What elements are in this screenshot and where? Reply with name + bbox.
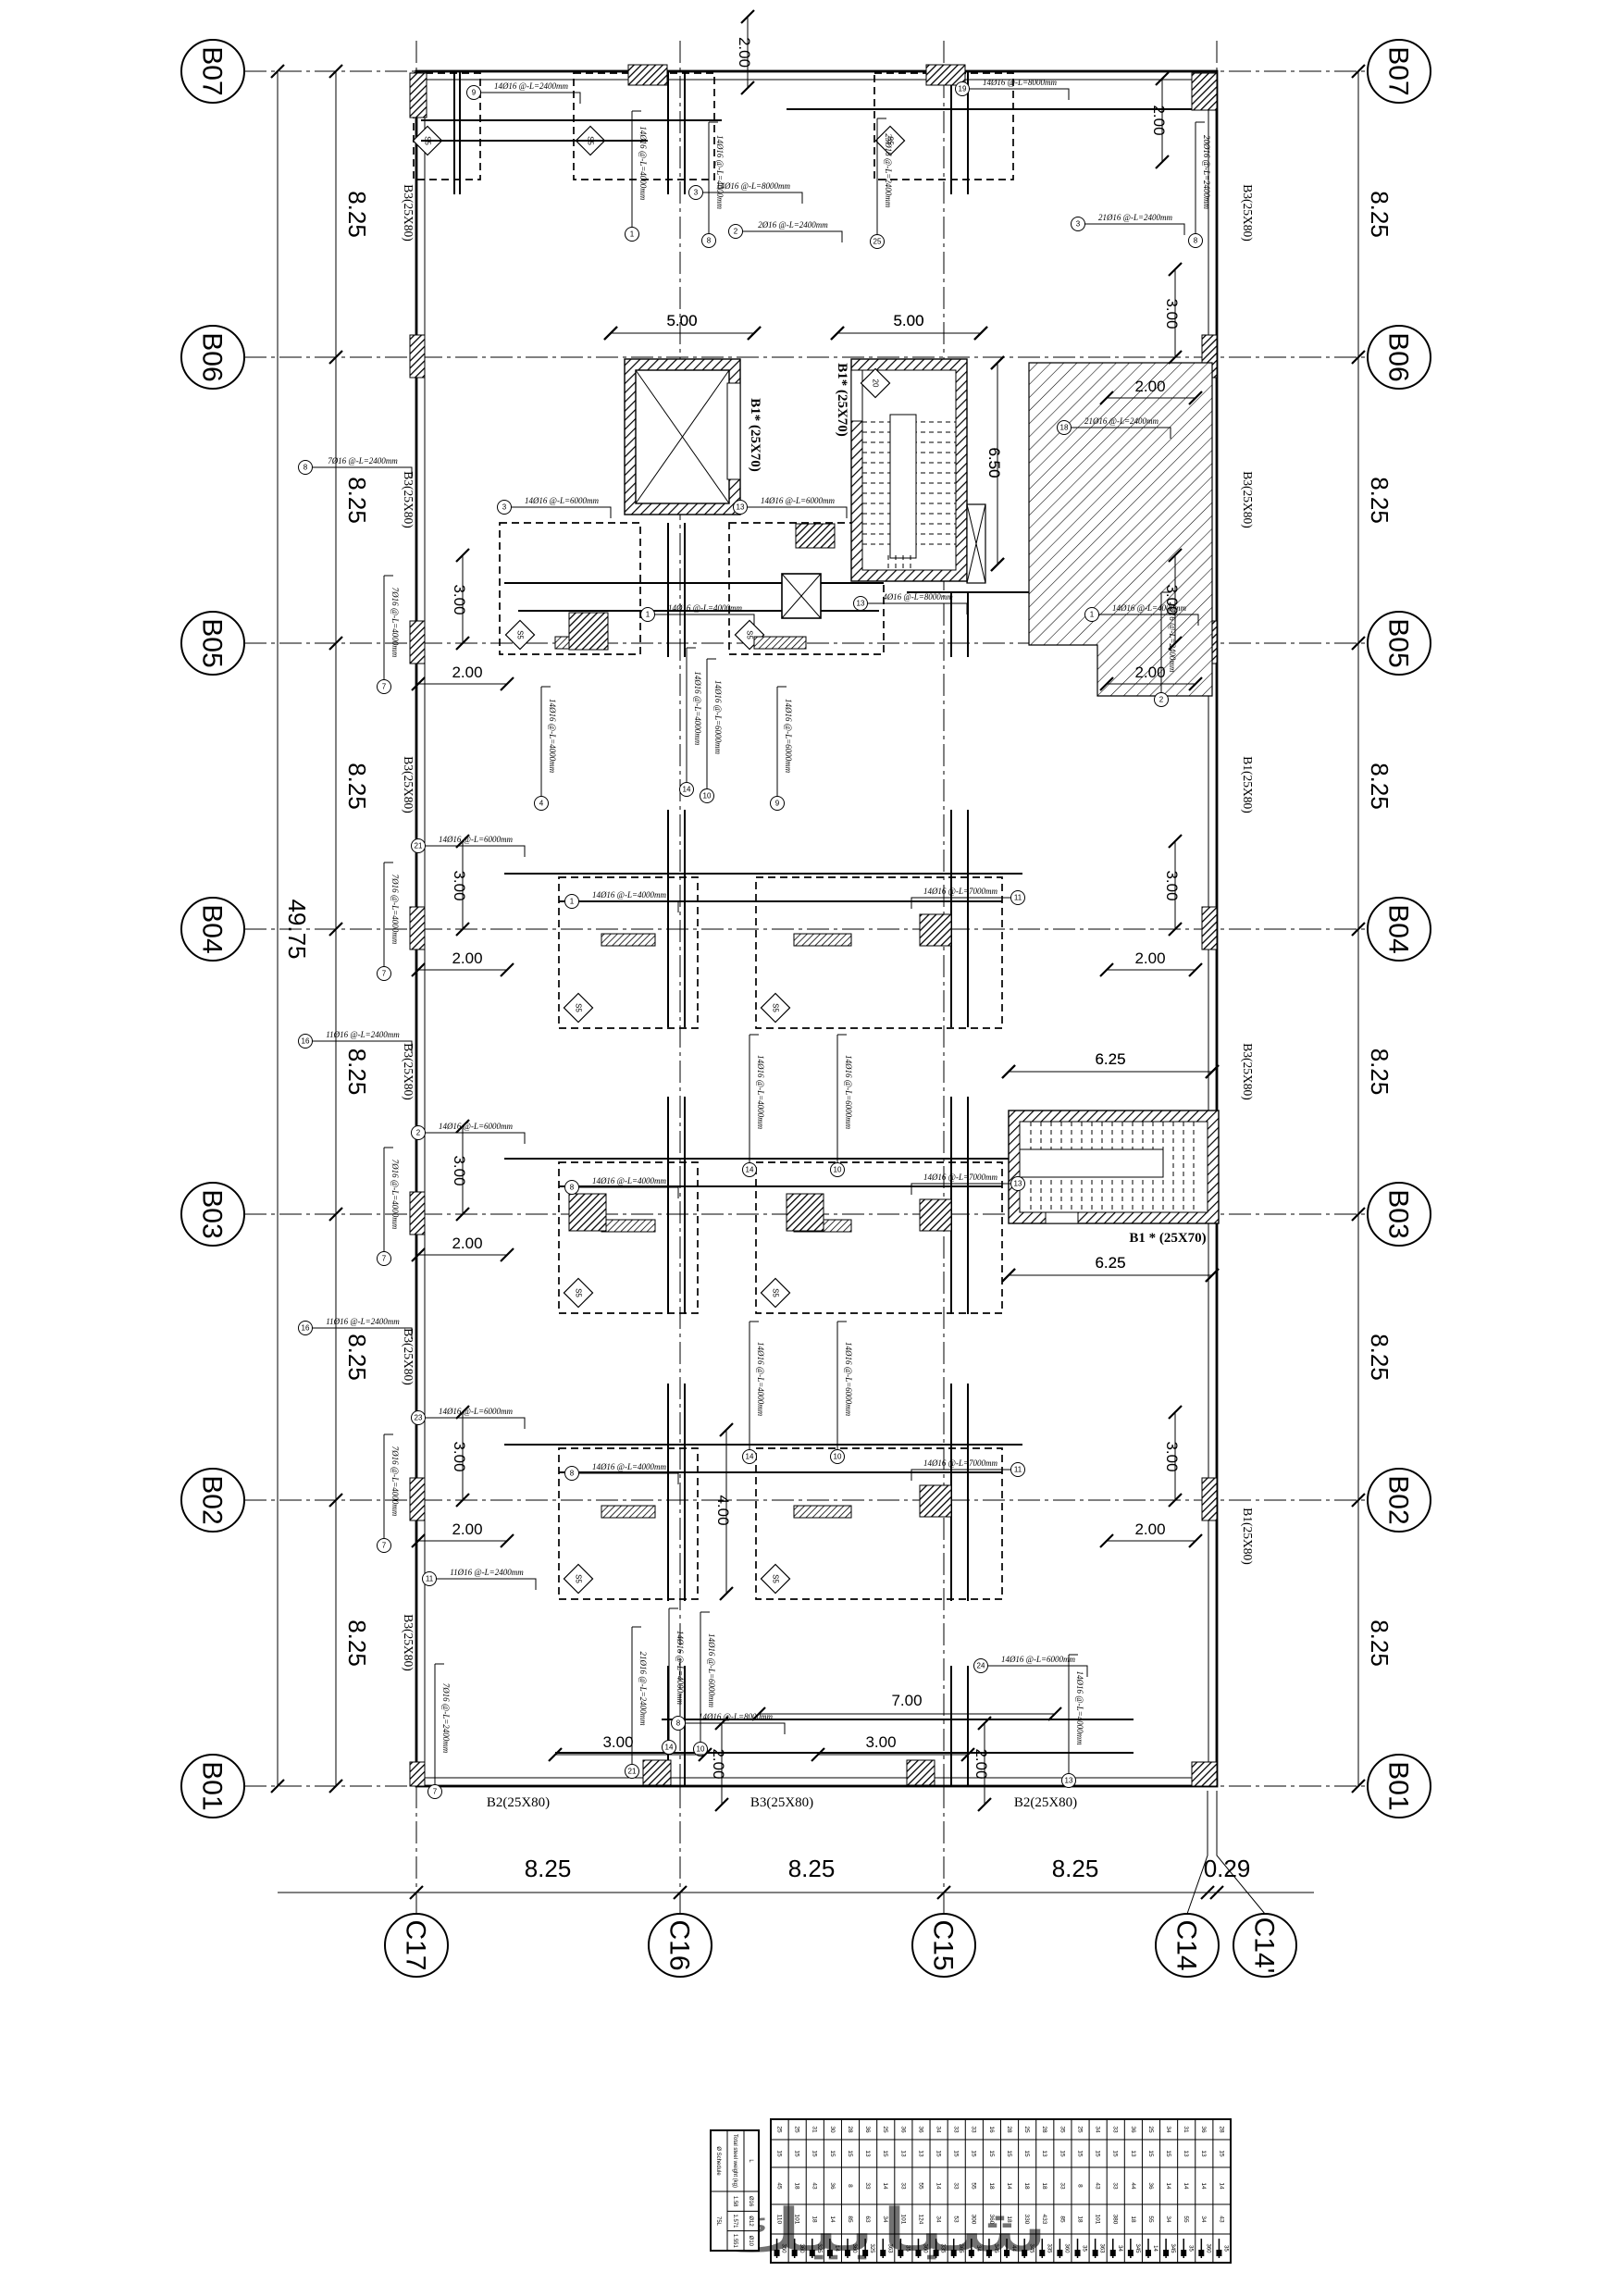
legend-cell: Ø12 [748, 2215, 753, 2227]
callout-number: 21 [628, 1768, 637, 1776]
grid-bubble-label-B07: B07 [197, 46, 228, 95]
rebar-callout-text: 14Ø16 @-L=7000mm [923, 1458, 998, 1468]
schedule-cell: 14 [1165, 2182, 1171, 2190]
schedule-cell: 14 [1200, 2182, 1207, 2190]
dim-label: 2.00 [452, 664, 482, 681]
rebar-callout-text: 14Ø16 @-L=4000mm [756, 1055, 765, 1130]
callout-number: 16 [302, 1037, 310, 1046]
column-hatch [569, 613, 608, 650]
edge-beam-label: B3(25X80) [1241, 184, 1255, 242]
schedule-shape-hook [1216, 2250, 1221, 2256]
callout-number: 9 [472, 89, 477, 97]
schedule-cell: 101 [794, 2215, 800, 2225]
rebar-callout-text: 14Ø16 @-L=4000mm [668, 603, 743, 613]
schedule-cell: 13 [1200, 2150, 1207, 2157]
schedule-cell: 14 [1152, 2245, 1158, 2252]
rebar-callout-text: 14Ø16 @-L=6000mm [844, 1342, 853, 1417]
schedule-cell: 35 [1082, 2245, 1087, 2252]
schedule-cell: 15 [1112, 2150, 1119, 2157]
schedule-cell: 35 [904, 2245, 910, 2252]
schedule-cell: 8 [1076, 2184, 1083, 2188]
dim-label: 7.00 [891, 1692, 922, 1709]
rebar-callout [512, 507, 611, 518]
structural-floor-plan: 49.758.258.258.258.258.258.258.258.258.2… [0, 0, 1623, 2296]
schedule-cell: 36 [1130, 2126, 1136, 2133]
elevator-door-slot [727, 383, 740, 479]
rebar-callout-text: 14Ø16 @-L=7000mm [923, 887, 998, 896]
legend-cell: 1.571 [732, 2214, 737, 2228]
schedule-cell: 43 [1095, 2182, 1101, 2190]
schedule-cell: 34 [1117, 2245, 1122, 2252]
rebar-callout-text: 14Ø16 @-L=6000mm [784, 699, 793, 774]
rebar-callout [579, 1473, 678, 1484]
schedule-cell: 34 [1165, 2126, 1171, 2133]
schedule-shape-hook [774, 2250, 780, 2256]
stair-door-slot [851, 370, 862, 421]
schedule-cell: 33 [971, 2126, 977, 2133]
callout-number: 8 [570, 1184, 575, 1192]
rebar-callout-text: 11Ø16 @-L=2400mm [450, 1568, 524, 1577]
schedule-cell: 15 [988, 2150, 995, 2157]
legend-cell: 75L [715, 2216, 721, 2227]
schedule-cell: 363 [1099, 2243, 1105, 2253]
rebar-callout-text: 25Ø16 @-L=2400mm [884, 133, 893, 208]
rebar-callout-text: 14Ø16 @-L=4000mm [756, 1342, 765, 1417]
hatched-slab-region [1029, 363, 1212, 696]
callout-number: 8 [676, 1719, 681, 1728]
schedule-cell: 15 [1218, 2150, 1224, 2157]
schedule-cell: 33 [1112, 2126, 1119, 2133]
callout-number: 13 [1014, 1180, 1022, 1188]
callout-number: 13 [857, 600, 865, 608]
schedule-cell: 35 [1223, 2245, 1229, 2252]
schedule-cell: 345 [993, 2243, 998, 2253]
schedule-cell: 325 [816, 2243, 822, 2253]
column-hatch [920, 914, 951, 946]
column-hatch [926, 65, 965, 85]
rebar-callout [748, 507, 847, 518]
grid-bubble-label-B07: B07 [1383, 46, 1414, 95]
schedule-shape-hook [1022, 2250, 1027, 2256]
schedule-shape-hook [934, 2250, 939, 2256]
schedule-cell: 433 [1041, 2215, 1047, 2225]
column-hatch [628, 65, 667, 85]
legend-header: Ø Schedule [715, 2146, 721, 2176]
legend-cell: Ø10 [748, 2236, 753, 2247]
schedule-cell: 15 [935, 2150, 942, 2157]
callout-number: 13 [1065, 1777, 1073, 1785]
edge-beam-label: B3(25X80) [402, 756, 415, 813]
rebar-callout-text: 7Ø16 @-L=4000mm [390, 588, 400, 658]
callout-number: 11 [426, 1575, 434, 1583]
schedule-cell: 14 [1218, 2182, 1224, 2190]
schedule-cell: 36 [917, 2126, 923, 2133]
schedule-cell: 15 [847, 2150, 853, 2157]
rebar-callout [988, 1666, 1087, 1677]
callout-number: 10 [697, 1745, 705, 1754]
dim-left-segment: 8.25 [343, 1334, 371, 1381]
schedule-cell: 13 [899, 2150, 906, 2157]
schedule-cell: 101 [899, 2215, 906, 2225]
schedule-shape-hook [792, 2250, 798, 2256]
schedule-cell: 25 [794, 2126, 800, 2133]
rebar-callout-text: 14Ø16 @-L=6000mm [707, 1633, 716, 1708]
rebar-callout-text: 7Ø16 @-L=4000mm [390, 1160, 400, 1230]
schedule-shape-hook [1075, 2250, 1081, 2256]
callout-number: 19 [959, 85, 967, 93]
callout-number: 8 [1194, 237, 1198, 245]
callout-number: 14 [683, 786, 691, 794]
callout-number: 7 [382, 1255, 387, 1263]
panel-marker-label: S5 [515, 630, 524, 639]
rebar-callout-text: 14Ø16 @-L=4000mm [693, 671, 702, 746]
dim-label: 2.00 [1150, 105, 1168, 135]
schedule-shape-hook [810, 2250, 815, 2256]
callout-number: 2 [1159, 696, 1164, 704]
schedule-cell: 25 [1147, 2126, 1154, 2133]
dim-label: 2.00 [973, 1748, 990, 1779]
grid-bubble-label-B03: B03 [1383, 1189, 1414, 1238]
schedule-cell: 360 [799, 2243, 804, 2253]
schedule-cell: 45 [775, 2182, 782, 2190]
rebar-callout-text: 14Ø16 @-L=4000mm [638, 126, 648, 201]
grid-leader [1217, 1791, 1265, 1914]
schedule-cell: 33 [953, 2182, 960, 2190]
column-hatch [787, 1194, 824, 1231]
hidden-beam [601, 1506, 655, 1518]
schedule-shape-hook [1128, 2250, 1134, 2256]
schedule-shape-hook [898, 2250, 903, 2256]
dim-label: 3.00 [1163, 1441, 1181, 1471]
callout-number: 10 [834, 1453, 842, 1461]
schedule-cell: 25 [882, 2126, 888, 2133]
callout-number: 10 [834, 1166, 842, 1174]
callout-number: 8 [304, 464, 308, 472]
edge-beam-label: B3(25X80) [1241, 471, 1255, 528]
schedule-cell: 30 [829, 2126, 836, 2133]
schedule-cell: 43 [811, 2182, 818, 2190]
schedule-cell: 15 [1006, 2150, 1012, 2157]
rebar-callout [911, 1470, 1010, 1481]
schedule-cell: 330 [1023, 2215, 1030, 2225]
dim-left-segment: 8.25 [343, 763, 371, 810]
schedule-shape-hook [845, 2250, 850, 2256]
rebar-callout-text: 4Ø16 @-L=8000mm [883, 592, 953, 602]
edge-beam-label: B3(25X80) [402, 184, 415, 242]
panel-marker-label: S5 [771, 1574, 779, 1583]
rebar-callout [655, 614, 754, 626]
bottom-beam-label: B2(25X80) [1014, 1795, 1077, 1810]
schedule-cell: 15 [775, 2150, 782, 2157]
rebar-callout-text: 14Ø16 @-L=8000mm [716, 181, 791, 191]
schedule-cell: 16 [988, 2126, 995, 2133]
schedule-shape-hook [827, 2250, 833, 2256]
callout-number: 1 [1090, 611, 1095, 619]
dim-total-left: 49.75 [283, 899, 311, 959]
column-hatch [1192, 1762, 1217, 1786]
schedule-cell: 33 [864, 2182, 871, 2190]
schedule-cell: 33 [899, 2182, 906, 2190]
callout-number: 2 [416, 1129, 421, 1137]
schedule-cell: 360 [988, 2215, 995, 2225]
schedule-cell: 55 [1183, 2215, 1189, 2223]
legend-header: Total steel weight (kg) [732, 2134, 737, 2188]
hidden-beam [601, 1220, 655, 1232]
callout-number: 7 [382, 683, 387, 691]
dim-right-segment: 8.25 [1366, 1334, 1394, 1381]
edge-beam-label: B1(25X80) [1241, 756, 1255, 813]
schedule-cell: 28 [1218, 2126, 1224, 2133]
schedule-cell: 34 [1095, 2126, 1101, 2133]
rebar-callout-text: 14Ø16 @-L=4000mm [548, 699, 557, 774]
schedule-shape-hook [880, 2250, 886, 2256]
dim-label: 2.00 [1134, 378, 1165, 395]
callout-number: 13 [737, 503, 745, 512]
schedule-shape-hook [986, 2250, 992, 2256]
grid-bubble-label-B06: B06 [1383, 332, 1414, 381]
legend-cell: Ø16 [748, 2196, 753, 2207]
schedule-cell: 55 [917, 2182, 923, 2190]
callout-number: 11 [1014, 1466, 1022, 1474]
schedule-cell: 14 [882, 2182, 888, 2190]
schedule-cell: 360 [851, 2243, 857, 2253]
dim-label: 4.00 [714, 1495, 732, 1525]
schedule-cell: 335 [1046, 2243, 1051, 2253]
rebar-callout [911, 1184, 1010, 1195]
rebar-callout [743, 231, 842, 242]
dim-label: 2.00 [1134, 664, 1165, 681]
column-hatch [410, 73, 427, 118]
schedule-cell: 28 [847, 2126, 853, 2133]
column-hatch [410, 335, 425, 378]
callout-number: 10 [703, 792, 712, 800]
dim-label: 6.25 [1095, 1254, 1125, 1272]
legend-cell: 1.551 [732, 2234, 737, 2249]
dim-left-segment: 8.25 [343, 477, 371, 524]
schedule-cell: 55 [1147, 2215, 1154, 2223]
dim-right-segment: 8.25 [1366, 763, 1394, 810]
dim-label: 2.00 [452, 949, 482, 967]
dim-label: 2.00 [452, 1235, 482, 1252]
callout-number: 7 [382, 1542, 387, 1550]
schedule-cell: 18 [1130, 2215, 1136, 2223]
drawing-sheet: 49.758.258.258.258.258.258.258.258.258.2… [0, 0, 1623, 2296]
dim-left-segment: 8.25 [343, 191, 371, 238]
schedule-cell: 14 [1183, 2182, 1189, 2190]
callout-number: 16 [302, 1324, 310, 1333]
schedule-cell: 18 [1023, 2182, 1030, 2190]
schedule-shape-hook [969, 2250, 974, 2256]
schedule-cell: 13 [1183, 2150, 1189, 2157]
dim-label: 5.00 [893, 312, 923, 329]
rebar-callout-text: 14Ø16 @-L=6000mm [761, 496, 836, 505]
schedule-cell: 25 [1023, 2126, 1030, 2133]
callout-number: 14 [746, 1166, 754, 1174]
stair-stringer [890, 415, 916, 558]
callout-number: 7 [433, 1788, 438, 1796]
panel-marker-label: S5 [574, 1003, 582, 1012]
rebar-callout [426, 846, 525, 857]
hidden-beam [754, 637, 806, 649]
dim-right-segment: 8.25 [1366, 191, 1394, 238]
callout-number: 1 [570, 898, 575, 906]
schedule-cell: 15 [882, 2150, 888, 2157]
schedule-cell: 33 [953, 2126, 960, 2133]
rebar-callout [426, 1418, 525, 1429]
edge-beam-label: B3(25X80) [1241, 1043, 1255, 1100]
callout-number: 3 [1076, 220, 1081, 229]
callout-number: 14 [665, 1744, 674, 1752]
schedule-cell: 124 [917, 2215, 923, 2225]
rebar-callout-text: 7Ø16 @-L=2400mm [441, 1683, 451, 1754]
panel-marker-label: S5 [771, 1003, 779, 1012]
grid-bubble-label-B05: B05 [1383, 618, 1414, 667]
rebar-callout-text: 11Ø16 @-L=2400mm [326, 1030, 400, 1039]
schedule-shape-hook [1093, 2250, 1098, 2256]
schedule-cell: 14 [935, 2182, 942, 2190]
dim-label: 2.00 [452, 1520, 482, 1538]
edge-beam-label: B3(25X80) [402, 1043, 415, 1100]
rebar-callout-text: 7Ø16 @-L=4000mm [390, 1446, 400, 1517]
hidden-beam [794, 1506, 851, 1518]
dim-label: 3.00 [451, 1441, 468, 1471]
rebar-callout-text: 14Ø16 @-L=6000mm [439, 835, 514, 844]
schedule-cell: 15 [811, 2150, 818, 2157]
grid-bubble-label-C14': C14' [1249, 1917, 1280, 1974]
dim-label: 2.00 [1134, 1520, 1165, 1538]
callout-number: 8 [570, 1470, 575, 1478]
dim-label: 3.00 [451, 1155, 468, 1185]
panel-marker-label: S5 [574, 1288, 582, 1297]
schedule-cell: 365 [958, 2243, 963, 2253]
column-hatch [1202, 1478, 1217, 1520]
dim-label: 3.00 [451, 870, 468, 900]
schedule-cell: 18 [988, 2182, 995, 2190]
column-hatch [1202, 907, 1217, 949]
schedule-cell: 53 [953, 2215, 960, 2223]
schedule-cell: 15 [1165, 2150, 1171, 2157]
schedule-cell: 15 [1023, 2150, 1030, 2157]
rebar-callout-text: 14Ø16 @-L=4000mm [592, 1462, 667, 1471]
rebar-callout [1085, 224, 1184, 235]
dim-label: 6.25 [1095, 1050, 1125, 1068]
legend-cell: 1.58 [732, 2196, 737, 2207]
grid-bubble-label-B02: B02 [1383, 1475, 1414, 1524]
schedule-cell: 350 [781, 2243, 787, 2253]
schedule-cell: 36 [899, 2126, 906, 2133]
schedule-cell: 15 [1059, 2150, 1065, 2157]
bottom-beam-label: B2(25X80) [487, 1795, 550, 1810]
dim-label: 3.00 [1163, 870, 1181, 900]
rebar-callout-text: 14Ø16 @-L=6000mm [525, 496, 600, 505]
schedule-shape-hook [1057, 2250, 1062, 2256]
dim-bottom-segment: 8.25 [1052, 1855, 1099, 1882]
rebar-callout [579, 901, 678, 912]
schedule-cell: 13 [1130, 2150, 1136, 2157]
schedule-cell: 15 [971, 2150, 977, 2157]
schedule-cell: 15 [1076, 2150, 1083, 2157]
grid-bubble-label-C15: C15 [928, 1919, 959, 1970]
grid-bubble-label-C16: C16 [664, 1919, 695, 1970]
edge-beam-label: B1(25X80) [1241, 1508, 1255, 1565]
column-hatch [920, 1199, 951, 1231]
dim-label: 3.00 [451, 584, 468, 614]
dim-bottom-segment: 0.29 [1204, 1855, 1251, 1882]
grid-bubble-label-B05: B05 [197, 618, 228, 667]
schedule-cell: 28 [1041, 2126, 1047, 2133]
stair-door-slot [1046, 1212, 1078, 1223]
grid-bubble-label-B02: B02 [197, 1475, 228, 1524]
rebar-callout [437, 1579, 536, 1590]
rebar-callout-text: 14Ø16 @-L=4000mm [675, 1631, 685, 1706]
schedule-cell: 15 [829, 2150, 836, 2157]
schedule-cell: 15 [1147, 2150, 1154, 2157]
schedule-cell: 14 [829, 2215, 836, 2223]
rebar-callout-text: 14Ø16 @-L=4000mm [1075, 1671, 1084, 1746]
dim-label: 3.00 [602, 1733, 633, 1751]
drop-panel [756, 1448, 1002, 1599]
schedule-cell: 43 [1218, 2215, 1224, 2223]
column-hatch [569, 1194, 606, 1231]
schedule-cell: 18 [1076, 2215, 1083, 2223]
rebar-callout [426, 1133, 525, 1144]
dim-right-segment: 8.25 [1366, 1620, 1394, 1667]
callout-number: 4 [539, 800, 544, 808]
rebar-callout-text: 14Ø16 @-L=6000mm [439, 1122, 514, 1131]
schedule-cell: 14 [834, 2245, 839, 2252]
rebar-callout-text: 21Ø16 @-L=2400mm [638, 1652, 648, 1727]
grid-bubble-label-B06: B06 [197, 332, 228, 381]
drop-panel [756, 877, 1002, 1028]
dim-label: 3.00 [1163, 584, 1181, 614]
schedule-cell: 31 [811, 2126, 818, 2133]
elevator-beam-label: B1* (25X70) [748, 398, 762, 472]
schedule-cell: 345 [1170, 2243, 1175, 2253]
callout-number: 3 [694, 189, 699, 197]
schedule-cell: 13 [1041, 2150, 1047, 2157]
callout-number: 3 [502, 503, 507, 512]
grid-bubble-label-B01: B01 [197, 1761, 228, 1810]
schedule-cell: 31 [1183, 2126, 1189, 2133]
schedule-cell: 360 [1205, 2243, 1210, 2253]
schedule-cell: 345 [1028, 2243, 1034, 2253]
callout-number: 24 [977, 1662, 985, 1670]
schedule-cell: 36 [864, 2126, 871, 2133]
schedule-shape-hook [1039, 2250, 1045, 2256]
panel-marker-label: 20 [871, 379, 879, 388]
callout-number: 8 [707, 237, 712, 245]
grid-bubble-label-B04: B04 [197, 904, 228, 953]
rebar-callout-text: 21Ø16 @-L=2400mm [1084, 416, 1159, 426]
schedule-cell: 13 [917, 2150, 923, 2157]
column-hatch [410, 907, 425, 949]
schedule-shape-hook [951, 2250, 957, 2256]
grid-bubble-label-B04: B04 [1383, 904, 1414, 953]
schedule-cell: 34 [882, 2215, 888, 2223]
schedule-cell: 15 [1095, 2150, 1101, 2157]
schedule-cell: 35 [1059, 2126, 1065, 2133]
grid-bubble-label-C17: C17 [401, 1919, 431, 1970]
dim-left-segment: 8.25 [343, 1620, 371, 1667]
stair-beam-label: B1* (25X70) [835, 363, 849, 437]
callout-number: 1 [646, 611, 650, 619]
column-hatch [410, 621, 425, 664]
dim-right-segment: 8.25 [1366, 1049, 1394, 1096]
schedule-cell: 360 [923, 2243, 928, 2253]
schedule-cell: 36 [1200, 2126, 1207, 2133]
column-hatch [410, 1192, 425, 1235]
callout-number: 25 [873, 238, 882, 246]
